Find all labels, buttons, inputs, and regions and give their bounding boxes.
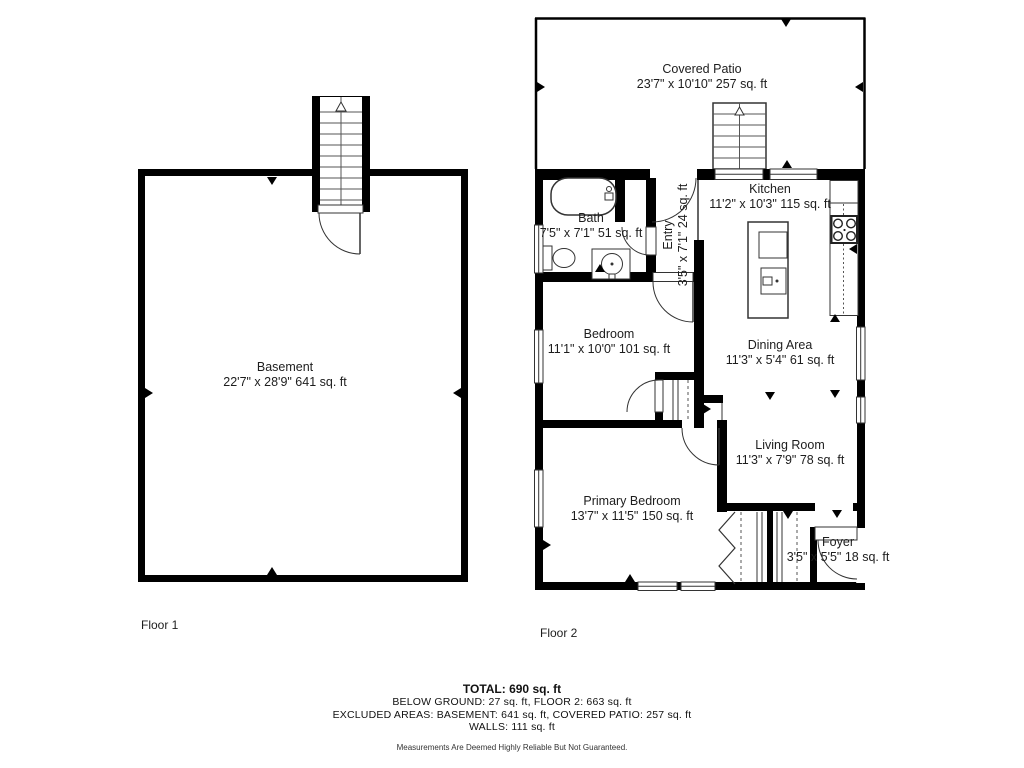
room-name: Bath — [540, 211, 643, 226]
wall-segment — [702, 395, 723, 403]
room-name: Basement — [223, 360, 346, 375]
room-dims: 22'7" x 28'9" 641 sq. ft — [223, 375, 346, 390]
kitchen-label: Kitchen 11'2" x 10'3" 115 sq. ft — [709, 182, 831, 212]
bathtub-icon — [551, 178, 616, 215]
primary-bedroom-door-icon — [682, 428, 719, 465]
window — [857, 397, 866, 423]
wall-segment — [655, 372, 704, 380]
room-dims: 11'1" x 10'0" 101 sq. ft — [548, 342, 671, 357]
accordion-door-icon — [719, 512, 735, 584]
window — [681, 582, 715, 591]
room-name: Covered Patio — [637, 62, 767, 77]
kitchen-island — [748, 222, 788, 318]
covered-patio-label: Covered Patio 23'7" x 10'10" 257 sq. ft — [637, 62, 767, 92]
island-sink — [759, 232, 787, 258]
room-dims: 23'7" x 10'10" 257 sq. ft — [637, 77, 767, 92]
wall-segment — [646, 178, 656, 227]
primary-bedroom-label: Primary Bedroom 13'7" x 11'5" 150 sq. ft — [571, 494, 694, 524]
bedroom-label: Bedroom 11'1" x 10'0" 101 sq. ft — [548, 327, 671, 357]
room-name: Dining Area — [726, 338, 835, 353]
room-dims: 11'3" x 7'9" 78 sq. ft — [736, 453, 845, 468]
bedroom-closet — [673, 380, 688, 420]
foyer-label: Foyer 3'5" x 5'5" 18 sq. ft — [787, 535, 890, 565]
room-name: Entry — [661, 184, 676, 287]
stove-icon — [832, 216, 858, 243]
summary-excluded: EXCLUDED AREAS: BASEMENT: 641 sq. ft, CO… — [0, 709, 1024, 722]
bedroom-closet-door-icon — [627, 380, 663, 412]
floor1-basement-plan — [142, 96, 465, 579]
patio-stairs-icon — [713, 103, 766, 169]
basement-label: Basement 22'7" x 28'9" 641 sq. ft — [223, 360, 346, 390]
floorplan-drawing — [0, 0, 1024, 768]
room-dims: 7'5" x 7'1" 51 sq. ft — [540, 226, 643, 241]
room-dims: 11'2" x 10'3" 115 sq. ft — [709, 197, 831, 212]
toilet-icon — [543, 246, 575, 270]
window — [715, 169, 763, 180]
room-name: Kitchen — [709, 182, 831, 197]
bath-label: Bath 7'5" x 7'1" 51 sq. ft — [540, 211, 643, 241]
window — [638, 582, 677, 591]
living-room-label: Living Room 11'3" x 7'9" 78 sq. ft — [736, 438, 845, 468]
summary-disclaimer: Measurements Are Deemed Highly Reliable … — [0, 743, 1024, 752]
wall-segment — [535, 420, 682, 428]
window — [770, 169, 817, 180]
room-name: Bedroom — [548, 327, 671, 342]
room-dims: 11'3" x 5'4" 61 sq. ft — [726, 353, 835, 368]
dishwasher-icon — [761, 268, 786, 294]
room-dims: 3'5" x 7'1" 24 sq. ft — [676, 184, 691, 287]
room-name: Living Room — [736, 438, 845, 453]
wall-segment — [717, 503, 815, 511]
dining-area-label: Dining Area 11'3" x 5'4" 61 sq. ft — [726, 338, 835, 368]
covered-patio-outline — [535, 18, 866, 169]
room-dims: 3'5" x 5'5" 18 sq. ft — [787, 550, 890, 565]
summary-total: TOTAL: 690 sq. ft — [0, 682, 1024, 696]
wall-segment — [767, 511, 773, 582]
room-name: Foyer — [787, 535, 890, 550]
wall-segment — [697, 169, 715, 180]
room-name: Primary Bedroom — [571, 494, 694, 509]
room-dims: 13'7" x 11'5" 150 sq. ft — [571, 509, 694, 524]
wall-segment — [853, 503, 865, 511]
bathroom-sink-icon — [592, 249, 630, 279]
window — [535, 330, 544, 383]
summary-walls: WALLS: 111 sq. ft — [0, 721, 1024, 734]
hall-closets — [719, 512, 797, 584]
basement-stairs-icon — [312, 96, 370, 212]
floor2-tag: Floor 2 — [540, 626, 577, 640]
area-summary: TOTAL: 690 sq. ft BELOW GROUND: 27 sq. f… — [0, 682, 1024, 752]
wall-segment — [763, 169, 770, 180]
floorplan-page: Basement 22'7" x 28'9" 641 sq. ft Covere… — [0, 0, 1024, 768]
window — [857, 327, 866, 380]
entry-label: Entry 3'5" x 7'1" 24 sq. ft — [661, 184, 691, 287]
floor1-tag: Floor 1 — [141, 618, 178, 632]
window — [535, 470, 544, 527]
summary-below-ground: BELOW GROUND: 27 sq. ft, FLOOR 2: 663 sq… — [0, 696, 1024, 709]
